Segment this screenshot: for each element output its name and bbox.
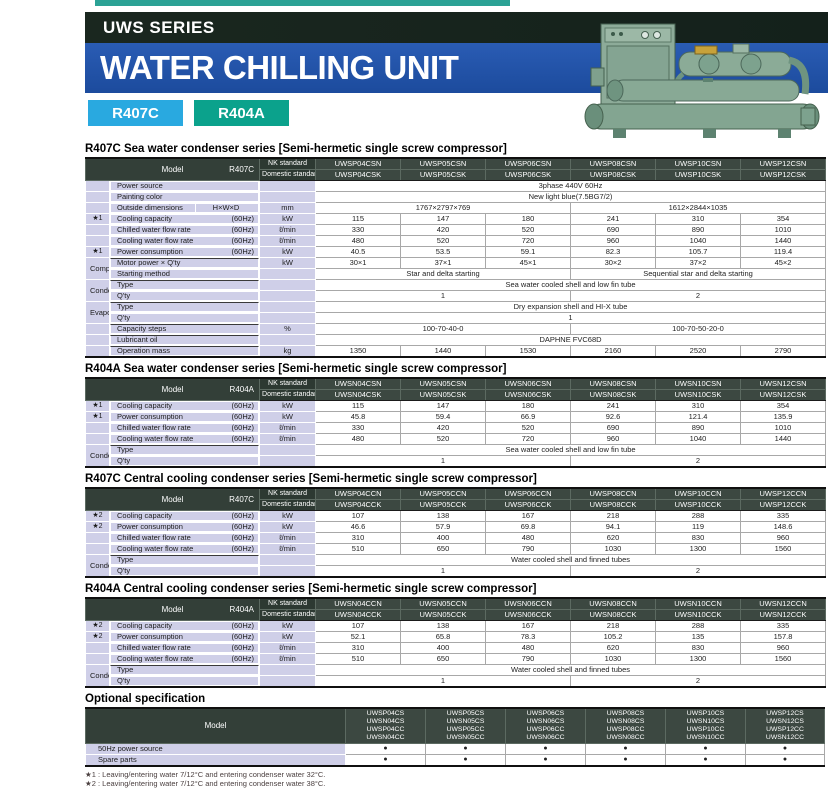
row-label: Q'ty: [117, 456, 130, 466]
row-label-cell: Power consumption(60Hz): [110, 522, 259, 532]
availability-dot: ●: [426, 744, 506, 755]
model-name-cell: UWSP10CSN: [656, 158, 741, 170]
value-cell: 288: [656, 511, 741, 522]
page-title: WATER CHILLING UNIT: [100, 49, 458, 87]
unit-cell: kW: [260, 412, 316, 423]
row-label-cell: Cooling capacity(60Hz): [110, 511, 259, 521]
value-cell: 650: [401, 654, 486, 665]
model-name-cell: UWSP06CCK: [486, 500, 571, 511]
refrigerant-label: R404A: [230, 605, 254, 615]
row-label: Cooling capacity: [117, 401, 172, 411]
value-cell: Dry expansion shell and HI-X tube: [316, 302, 826, 313]
spec-tables: R407C Sea water condenser series [Semi-h…: [85, 143, 828, 688]
spec-row: Chilled water flow rate(60Hz)ℓ/min330420…: [86, 225, 826, 236]
model-name-cell: UWSN04CCN: [316, 598, 401, 610]
value-cell: 480: [316, 236, 401, 247]
header-row-nk: ModelR404ANK standardUWSN04CSNUWSN05CSNU…: [86, 378, 826, 390]
model-header-cell: ModelR404A: [86, 598, 260, 621]
model-name-cell: UWSN06CCK: [486, 610, 571, 621]
hz-label: (60Hz): [232, 643, 257, 653]
spec-row: Cooling water flow rate(60Hz)ℓ/min480520…: [86, 236, 826, 247]
unit-cell: ℓ/min: [260, 423, 316, 434]
unit-cell: kW: [260, 632, 316, 643]
star-cell: ★1: [86, 401, 110, 412]
availability-dot: ●: [426, 755, 506, 767]
optional-model-name: UWSP06CS: [506, 710, 585, 718]
star-cell: [86, 236, 110, 247]
unit-cell: ℓ/min: [260, 434, 316, 445]
value-cell: 37×1: [401, 258, 486, 269]
table-title: R407C Central cooling condenser series […: [85, 473, 828, 485]
model-name-cell: UWSN08CCK: [571, 610, 656, 621]
hz-label: (60Hz): [232, 434, 257, 444]
value-cell: 2: [571, 676, 826, 688]
nk-standard-label: NK standard: [260, 488, 316, 500]
row-label-cell: Type: [110, 302, 259, 312]
table-title: R407C Sea water condenser series [Semi-h…: [85, 143, 828, 155]
value-cell: 147: [401, 401, 486, 412]
value-cell: 2160: [571, 346, 656, 358]
spec-row: ★1Power consumption(60Hz)kW45.859.466.99…: [86, 412, 826, 423]
value-cell: 400: [401, 643, 486, 654]
model-name-cell: UWSP10CCN: [656, 488, 741, 500]
spec-row: Q'ty12: [86, 456, 826, 468]
value-cell: 107: [316, 511, 401, 522]
value-cell: 45×2: [741, 258, 826, 269]
row-label-cell: Type: [110, 445, 259, 455]
row-label-cell: Chilled water flow rate(60Hz): [110, 225, 259, 235]
value-cell: 119: [656, 522, 741, 533]
spec-row: Starting methodStar and delta startingSe…: [86, 269, 826, 280]
optional-model-name: UWSP12CS: [746, 710, 824, 718]
row-label-cell: Q'ty: [110, 566, 259, 576]
row-label: Q'ty: [117, 313, 130, 323]
row-label-cell: Chilled water flow rate(60Hz): [110, 423, 259, 433]
optional-model-name: UWSP04CC: [346, 726, 425, 734]
model-name-cell: UWSN05CSK: [401, 390, 486, 401]
value-cell: 167: [486, 621, 571, 632]
availability-dot: ●: [746, 755, 825, 767]
model-name-cell: UWSP12CCK: [741, 500, 826, 511]
value-cell: 1300: [656, 654, 741, 665]
spec-row: EvaporatorTypeDry expansion shell and HI…: [86, 302, 826, 313]
value-cell: 52.1: [316, 632, 401, 643]
spec-row: ★1Cooling capacity(60Hz)kW11514718024131…: [86, 214, 826, 225]
model-name-cell: UWSP04CSN: [316, 158, 401, 170]
hz-label: (60Hz): [232, 621, 257, 631]
table-title: R404A Sea water condenser series [Semi-h…: [85, 363, 828, 375]
star-cell: ★2: [86, 511, 110, 522]
value-cell: 1010: [741, 423, 826, 434]
row-label: Cooling water flow rate: [117, 544, 193, 554]
availability-dot: ●: [346, 744, 426, 755]
value-cell: 420: [401, 423, 486, 434]
unit-cell: ℓ/min: [260, 654, 316, 665]
row-label-cell: Chilled water flow rate(60Hz): [110, 533, 259, 543]
spec-table: ModelR407CNK standardUWSP04CCNUWSP05CCNU…: [85, 487, 826, 578]
row-label-cell: Motor power × Q'ty: [110, 258, 259, 268]
spec-row: Q'ty1: [86, 313, 826, 324]
row-label-cell: Chilled water flow rate(60Hz): [110, 643, 259, 653]
footnotes: ★1 : Leaving/entering water 7/12°C and e…: [85, 770, 828, 788]
row-label: Chilled water flow rate: [117, 643, 191, 653]
row-label-cell: Power source: [110, 181, 259, 191]
spec-row: Cooling water flow rate(60Hz)ℓ/min480520…: [86, 434, 826, 445]
star-cell: [86, 544, 110, 555]
spec-row: Q'ty12: [86, 676, 826, 688]
unit-cell: [260, 665, 316, 676]
model-name-cell: UWSN10CSK: [656, 390, 741, 401]
row-label-cell: Type: [110, 665, 259, 675]
value-cell: 66.9: [486, 412, 571, 423]
model-name-cell: UWSN05CSN: [401, 378, 486, 390]
value-cell: 1010: [741, 225, 826, 236]
spec-row: ★1Power consumption(60Hz)kW40.553.559.18…: [86, 247, 826, 258]
model-name-cell: UWSP12CSK: [741, 170, 826, 181]
value-cell: 330: [316, 423, 401, 434]
product-photo-water-chiller: [583, 16, 828, 142]
spec-row: Capacity steps%100-70-40-0100-70-50-20-0: [86, 324, 826, 335]
value-cell: 45×1: [486, 258, 571, 269]
nk-standard-label: NK standard: [260, 158, 316, 170]
unit-cell: kW: [260, 247, 316, 258]
optional-model-name: UWSN12CC: [746, 734, 824, 742]
value-cell: 1030: [571, 654, 656, 665]
optional-row: Spare parts●●●●●●: [86, 755, 825, 767]
model-header-cell: ModelR404A: [86, 378, 260, 401]
row-label: Cooling water flow rate: [117, 654, 193, 664]
row-label: Type: [117, 280, 133, 290]
row-label-cell: Type: [110, 280, 259, 290]
star-cell: ★2: [86, 621, 110, 632]
model-name-cell: UWSP05CSN: [401, 158, 486, 170]
row-label: Cooling water flow rate: [117, 236, 193, 246]
optional-model-name: UWSN04CC: [346, 734, 425, 742]
row-label-cell: Cooling water flow rate(60Hz): [110, 236, 259, 246]
spec-row: Chilled water flow rate(60Hz)ℓ/min310400…: [86, 533, 826, 544]
value-cell: 2520: [656, 346, 741, 358]
group-label-cell: Compressor: [86, 258, 110, 280]
value-cell: 620: [571, 643, 656, 654]
optional-model-name: UWSN06CS: [506, 718, 585, 726]
spec-row: ★2Cooling capacity(60Hz)kW10713816721828…: [86, 621, 826, 632]
value-cell: 65.8: [401, 632, 486, 643]
row-label-cell: Outside dimensionsH×W×D: [110, 203, 259, 213]
availability-dot: ●: [666, 755, 746, 767]
row-label-cell: Cooling water flow rate(60Hz): [110, 544, 259, 554]
value-cell: 960: [571, 434, 656, 445]
value-cell: 59.4: [401, 412, 486, 423]
unit-cell: [260, 445, 316, 456]
value-cell: 100-70-50-20-0: [571, 324, 826, 335]
series-label: UWS SERIES: [103, 18, 215, 38]
row-label-cell: Power consumption(60Hz): [110, 247, 259, 257]
model-name-cell: UWSN12CSK: [741, 390, 826, 401]
header-row-nk: ModelR404ANK standardUWSN04CCNUWSN05CCNU…: [86, 598, 826, 610]
optional-model-name: UWSN08CC: [586, 734, 665, 742]
value-cell: 960: [571, 236, 656, 247]
optional-model-name: UWSN10CS: [666, 718, 745, 726]
value-cell: 400: [401, 533, 486, 544]
value-cell: 790: [486, 654, 571, 665]
spec-table: ModelR404ANK standardUWSN04CSNUWSN05CSNU…: [85, 377, 826, 468]
optional-model-header: Model: [86, 708, 346, 744]
value-cell: 30×2: [571, 258, 656, 269]
model-name-cell: UWSP06CCN: [486, 488, 571, 500]
value-cell: 105.7: [656, 247, 741, 258]
optional-model-name: UWSP06CC: [506, 726, 585, 734]
optional-model-name: UWSN12CS: [746, 718, 824, 726]
optional-model-column: UWSP04CSUWSN04CSUWSP04CCUWSN04CC: [346, 708, 426, 744]
value-cell: 1040: [656, 236, 741, 247]
value-cell: 119.4: [741, 247, 826, 258]
row-label-cell: Cooling capacity(60Hz): [110, 214, 259, 224]
value-cell: 1560: [741, 544, 826, 555]
value-cell: 480: [316, 434, 401, 445]
model-name-cell: UWSN12CCK: [741, 610, 826, 621]
spec-row: Lubricant oilDAPHNE FVC68D: [86, 335, 826, 346]
row-label-cell: Power consumption(60Hz): [110, 632, 259, 642]
unit-cell: [260, 335, 316, 346]
value-cell: 620: [571, 533, 656, 544]
value-cell: 288: [656, 621, 741, 632]
unit-cell: [260, 192, 316, 203]
row-label-cell: Painting color: [110, 192, 259, 202]
value-cell: 82.3: [571, 247, 656, 258]
model-name-cell: UWSP06CSK: [486, 170, 571, 181]
value-cell: Sea water cooled shell and low fin tube: [316, 445, 826, 456]
value-cell: 1350: [316, 346, 401, 358]
header-row-nk: ModelR407CNK standardUWSP04CSNUWSP05CSNU…: [86, 158, 826, 170]
row-label: Capacity steps: [117, 324, 166, 334]
value-cell: 1560: [741, 654, 826, 665]
domestic-standard-label: Domestic standard: [260, 500, 316, 511]
model-header-cell: ModelR407C: [86, 158, 260, 181]
row-label: Cooling water flow rate: [117, 434, 193, 444]
star-cell: [86, 643, 110, 654]
value-cell: 53.5: [401, 247, 486, 258]
value-cell: 59.1: [486, 247, 571, 258]
optional-model-name: UWSP10CS: [666, 710, 745, 718]
value-cell: 1: [316, 313, 826, 324]
value-cell: 690: [571, 423, 656, 434]
optional-model-column: UWSP12CSUWSN12CSUWSP12CCUWSN12CC: [746, 708, 825, 744]
row-label: Chilled water flow rate: [117, 533, 191, 543]
value-cell: 135.9: [741, 412, 826, 423]
row-label: Chilled water flow rate: [117, 423, 191, 433]
optional-spec-table: ModelUWSP04CSUWSN04CSUWSP04CCUWSN04CCUWS…: [85, 707, 828, 767]
value-cell: 690: [571, 225, 656, 236]
value-cell: 1440: [741, 236, 826, 247]
row-label-cell: Q'ty: [110, 676, 259, 686]
unit-cell: kW: [260, 258, 316, 269]
value-cell: 420: [401, 225, 486, 236]
unit-cell: [260, 181, 316, 192]
value-cell: 1030: [571, 544, 656, 555]
value-cell: 148.6: [741, 522, 826, 533]
refrigerant-label: R407C: [229, 165, 254, 175]
value-cell: Water cooled shell and finned tubes: [316, 555, 826, 566]
availability-dot: ●: [586, 744, 666, 755]
model-name-cell: UWSP08CCN: [571, 488, 656, 500]
star-cell: ★1: [86, 247, 110, 258]
optional-model-name: UWSN08CS: [586, 718, 665, 726]
value-cell: 115: [316, 401, 401, 412]
hz-label: (60Hz): [232, 632, 257, 642]
row-label: Power consumption: [117, 632, 183, 642]
unit-cell: [260, 313, 316, 324]
optional-model-name: UWSP10CC: [666, 726, 745, 734]
hz-label: (60Hz): [232, 654, 257, 664]
row-label: Motor power × Q'ty: [117, 258, 180, 268]
value-cell: 180: [486, 401, 571, 412]
value-cell: Sequential star and delta starting: [571, 269, 826, 280]
value-cell: 105.2: [571, 632, 656, 643]
model-name-cell: UWSP04CCK: [316, 500, 401, 511]
value-cell: 100-70-40-0: [316, 324, 571, 335]
spec-row: Chilled water flow rate(60Hz)ℓ/min310400…: [86, 643, 826, 654]
row-label: Type: [117, 555, 133, 565]
availability-dot: ●: [746, 744, 825, 755]
optional-model-name: UWSP04CS: [346, 710, 425, 718]
value-cell: 37×2: [656, 258, 741, 269]
value-cell: 45.8: [316, 412, 401, 423]
star-cell: [86, 192, 110, 203]
hz-label: (60Hz): [232, 423, 257, 433]
row-label-cell: Q'ty: [110, 291, 259, 301]
value-cell: 40.5: [316, 247, 401, 258]
value-cell: 520: [486, 225, 571, 236]
unit-cell: kW: [260, 621, 316, 632]
spec-row: CondenserTypeWater cooled shell and finn…: [86, 665, 826, 676]
row-label-cell: Q'ty: [110, 313, 259, 323]
value-cell: 330: [316, 225, 401, 236]
row-label-cell: Cooling capacity(60Hz): [110, 621, 259, 631]
model-name-cell: UWSP08CSN: [571, 158, 656, 170]
model-name-cell: UWSN05CCK: [401, 610, 486, 621]
spec-row: Painting colorNew light blue(7.5BG7/2): [86, 192, 826, 203]
value-cell: 335: [741, 621, 826, 632]
optional-row: 50Hz power source●●●●●●: [86, 744, 825, 755]
footnote-2: ★2 : Leaving/entering water 7/12°C and e…: [85, 779, 828, 788]
model-name-cell: UWSP10CCK: [656, 500, 741, 511]
unit-cell: kW: [260, 522, 316, 533]
value-cell: 1767×2797×769: [316, 203, 571, 214]
unit-cell: [260, 566, 316, 578]
row-label-cell: Power consumption(60Hz): [110, 412, 259, 422]
value-cell: 1530: [486, 346, 571, 358]
model-name-cell: UWSP06CSN: [486, 158, 571, 170]
value-cell: 790: [486, 544, 571, 555]
optional-row-label: Spare parts: [86, 755, 346, 767]
unit-cell: [260, 676, 316, 688]
model-name-cell: UWSN04CSK: [316, 390, 401, 401]
spec-row: Cooling water flow rate(60Hz)ℓ/min510650…: [86, 654, 826, 665]
row-label-cell: Capacity steps: [110, 324, 259, 334]
unit-cell: %: [260, 324, 316, 335]
value-cell: 2790: [741, 346, 826, 358]
spec-row: Cooling water flow rate(60Hz)ℓ/min510650…: [86, 544, 826, 555]
hz-label: (60Hz): [232, 247, 257, 257]
star-cell: [86, 203, 110, 214]
value-cell: 830: [656, 533, 741, 544]
badge-r407c: R407C: [88, 100, 183, 126]
row-label: Type: [117, 445, 133, 455]
domestic-standard-label: Domestic standard: [260, 170, 316, 181]
model-name-cell: UWSP12CCN: [741, 488, 826, 500]
value-cell: 241: [571, 401, 656, 412]
model-name-cell: UWSN12CCN: [741, 598, 826, 610]
optional-model-name: UWSN05CC: [426, 734, 505, 742]
footnote-1: ★1 : Leaving/entering water 7/12°C and e…: [85, 770, 828, 779]
row-label-cell: Type: [110, 555, 259, 565]
spec-row: ★2Power consumption(60Hz)kW46.657.969.89…: [86, 522, 826, 533]
unit-cell: [260, 555, 316, 566]
hz-label: (60Hz): [232, 511, 257, 521]
group-label-cell: Condenser: [86, 280, 110, 302]
value-cell: 310: [656, 214, 741, 225]
row-label: Outside dimensions: [117, 203, 183, 213]
row-sublabel: H×W×D: [195, 203, 256, 213]
value-cell: 310: [656, 401, 741, 412]
unit-cell: ℓ/min: [260, 643, 316, 654]
model-name-cell: UWSP04CCN: [316, 488, 401, 500]
value-cell: 135: [656, 632, 741, 643]
spec-table: ModelR407CNK standardUWSP04CSNUWSP05CSNU…: [85, 157, 826, 358]
spec-row: Outside dimensionsH×W×Dmm1767×2797×76916…: [86, 203, 826, 214]
group-label-cell: Condenser: [86, 665, 110, 688]
optional-model-name: UWSN06CC: [506, 734, 585, 742]
star-cell: ★1: [86, 214, 110, 225]
optional-model-name: UWSP05CC: [426, 726, 505, 734]
value-cell: 335: [741, 511, 826, 522]
value-cell: 107: [316, 621, 401, 632]
star-cell: ★2: [86, 522, 110, 533]
unit-cell: kW: [260, 214, 316, 225]
value-cell: 480: [486, 643, 571, 654]
star-cell: [86, 434, 110, 445]
value-cell: 520: [401, 236, 486, 247]
nk-standard-label: NK standard: [260, 598, 316, 610]
domestic-standard-label: Domestic standard: [260, 610, 316, 621]
value-cell: 510: [316, 654, 401, 665]
model-name-cell: UWSP05CCN: [401, 488, 486, 500]
star-cell: [86, 346, 110, 358]
unit-cell: [260, 280, 316, 291]
row-label: Power consumption: [117, 522, 183, 532]
spec-row: CondenserTypeSea water cooled shell and …: [86, 280, 826, 291]
spec-row: CondenserTypeSea water cooled shell and …: [86, 445, 826, 456]
row-label: Power consumption: [117, 412, 183, 422]
group-label-cell: Condenser: [86, 445, 110, 468]
row-label: Type: [117, 302, 133, 312]
row-label: Power consumption: [117, 247, 183, 257]
row-label-cell: Operation mass: [110, 346, 259, 356]
model-name-cell: UWSN04CCK: [316, 610, 401, 621]
unit-cell: [260, 291, 316, 302]
value-cell: 167: [486, 511, 571, 522]
model-name-cell: UWSN12CSN: [741, 378, 826, 390]
value-cell: Sea water cooled shell and low fin tube: [316, 280, 826, 291]
model-name-cell: UWSN05CCN: [401, 598, 486, 610]
value-cell: 1: [316, 456, 571, 468]
value-cell: 138: [401, 511, 486, 522]
star-cell: ★1: [86, 412, 110, 423]
optional-model-name: UWSN10CC: [666, 734, 745, 742]
model-name-cell: UWSN06CCN: [486, 598, 571, 610]
value-cell: 180: [486, 214, 571, 225]
group-label-cell: Evaporator: [86, 302, 110, 324]
